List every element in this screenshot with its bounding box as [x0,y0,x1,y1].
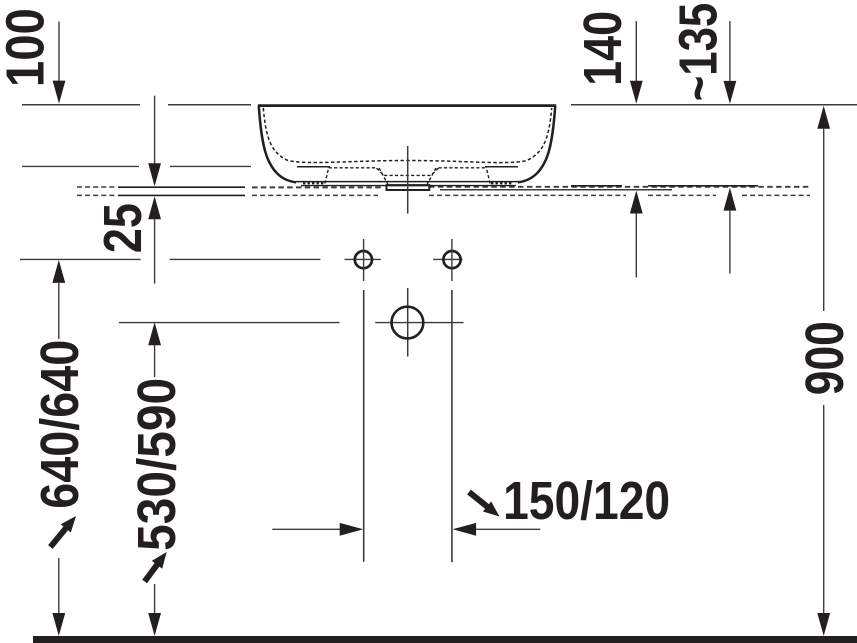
svg-text:100: 100 [0,8,56,87]
svg-text:25: 25 [93,203,153,253]
svg-text:150/120: 150/120 [503,471,670,531]
svg-text:640/640: 640/640 [30,340,90,509]
svg-text:530/590: 530/590 [127,378,187,551]
svg-text:~135: ~135 [668,3,728,102]
svg-text:900: 900 [795,321,855,395]
svg-text:140: 140 [573,11,633,86]
